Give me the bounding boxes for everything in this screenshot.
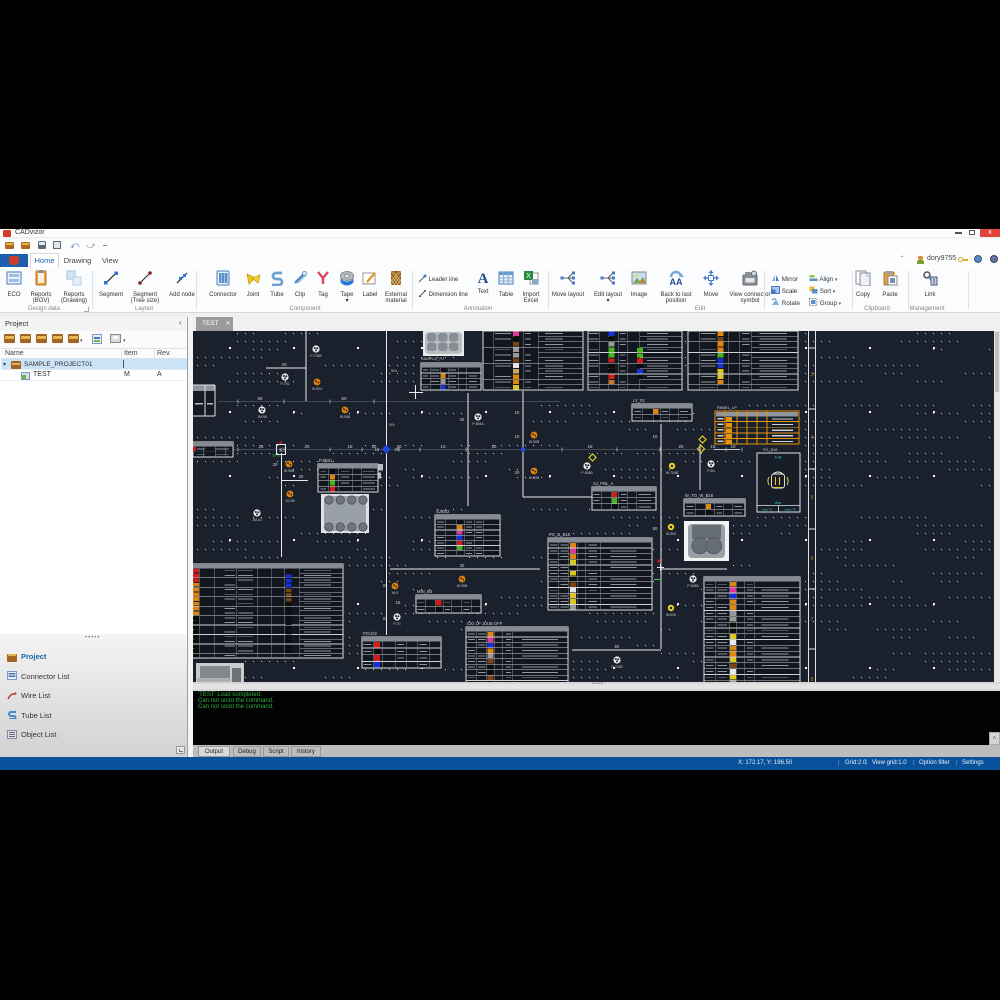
svg-text:20: 20	[281, 362, 287, 367]
svg-text:55: 55	[257, 396, 263, 401]
svg-text:P-804B: P-804B	[581, 471, 593, 475]
svg-text:15: 15	[515, 410, 520, 415]
svg-text:W_TO_W_B18: W_TO_W_B18	[685, 493, 714, 498]
svg-text:15: 15	[710, 444, 716, 449]
svg-text:PJ/B01: PJ/B01	[319, 458, 333, 463]
svg-text:15: 15	[491, 444, 497, 449]
svg-text:W-9: W-9	[392, 591, 398, 595]
svg-text:SAMPLE_PJ: SAMPLE_PJ	[421, 356, 444, 361]
svg-text:P-702B: P-702B	[611, 665, 623, 669]
svg-text:P-702: P-702	[280, 382, 289, 386]
svg-text:P-704B: P-704B	[310, 354, 322, 358]
svg-text:15: 15	[347, 444, 353, 449]
svg-text:AA: AA	[670, 277, 683, 286]
svg-text:W-906: W-906	[666, 613, 676, 617]
svg-text:JM-02: JM-02	[252, 518, 262, 522]
svg-text:5: 5	[811, 495, 814, 501]
svg-text:PG_B18: PG_B18	[763, 448, 777, 452]
svg-text:15: 15	[375, 447, 380, 452]
svg-text:MIN_B0: MIN_B0	[417, 589, 433, 594]
svg-text:30: 30	[460, 563, 465, 568]
svg-text:10: 10	[515, 434, 520, 439]
svg-text:PG_B_B18: PG_B_B18	[549, 532, 571, 537]
svg-text:W-90B: W-90B	[284, 469, 295, 473]
svg-text:25: 25	[460, 417, 465, 422]
svg-text:25: 25	[304, 444, 310, 449]
svg-text:50: 50	[653, 526, 658, 531]
svg-text:CIG LP JUUB OFF: CIG LP JUUB OFF	[467, 621, 503, 626]
svg-text:JM-98: JM-98	[257, 415, 267, 419]
svg-text:50: 50	[341, 396, 347, 401]
svg-text:10: 10	[653, 434, 658, 439]
svg-text:25: 25	[678, 444, 684, 449]
svg-text:W-704B: W-704B	[666, 471, 679, 475]
svg-text:6: 6	[811, 556, 814, 562]
svg-text:10: 10	[440, 444, 446, 449]
svg-text:W-90B: W-90B	[529, 476, 540, 480]
svg-text:PG/J02: PG/J02	[363, 631, 378, 636]
svg-text:20: 20	[299, 474, 304, 479]
svg-text:W-90B: W-90B	[529, 440, 540, 444]
svg-text:7: 7	[811, 617, 814, 623]
svg-text:20: 20	[383, 583, 388, 588]
svg-text:16: 16	[587, 444, 593, 449]
svg-text:50: 50	[615, 644, 620, 649]
svg-text:LY_01: LY_01	[633, 398, 645, 403]
svg-text:10: 10	[730, 444, 736, 449]
svg-text:P-B4: P-B4	[707, 469, 715, 473]
svg-text:P-504B: P-504B	[687, 584, 699, 588]
svg-text:PANEL_LP: PANEL_LP	[717, 405, 737, 410]
svg-text:20: 20	[273, 462, 278, 467]
svg-text:A-06: A-06	[775, 456, 782, 460]
svg-text:4: 4	[811, 435, 814, 441]
svg-text:W-904: W-904	[312, 387, 322, 391]
svg-text:front 75: front 75	[762, 508, 773, 512]
svg-text:view: view	[775, 501, 782, 505]
svg-text:W-90B: W-90B	[340, 415, 351, 419]
svg-text:W-906: W-906	[666, 532, 676, 536]
svg-text:P-804A: P-804A	[472, 422, 484, 426]
svg-text:25: 25	[258, 444, 264, 449]
svg-text:15: 15	[396, 600, 401, 605]
svg-text:SJ_PNL_A: SJ_PNL_A	[593, 481, 614, 486]
svg-text:22: 22	[383, 616, 388, 621]
svg-text:20: 20	[395, 447, 400, 452]
svg-text:20: 20	[515, 470, 520, 475]
svg-text:SJ-0B: SJ-0B	[285, 499, 295, 503]
svg-text:SJ/B02: SJ/B02	[436, 509, 450, 514]
svg-text:P-70: P-70	[393, 622, 400, 626]
svg-text:W-90B: W-90B	[457, 584, 468, 588]
svg-text:3: 3	[811, 372, 814, 378]
svg-text:50s: 50s	[391, 368, 397, 373]
svg-text:28 L: 28 L	[272, 454, 279, 458]
svg-text:X: X	[526, 273, 531, 280]
svg-text:scale 75: scale 75	[784, 508, 796, 512]
svg-text:50r: 50r	[389, 422, 395, 427]
